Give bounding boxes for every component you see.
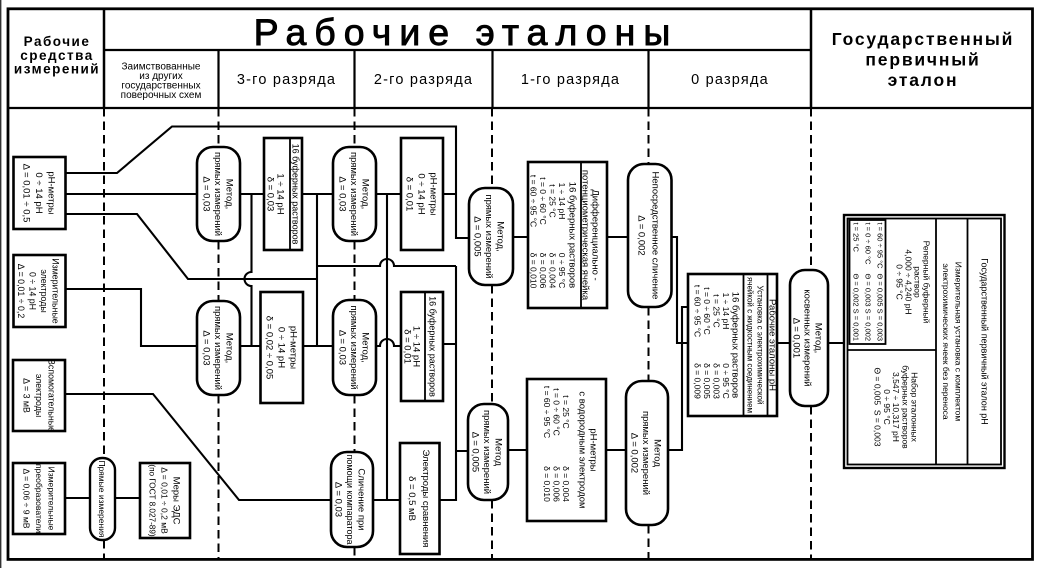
svg-text:δ = 0,006: δ = 0,006 bbox=[538, 253, 548, 289]
svg-text:помощи компаратора: помощи компаратора bbox=[345, 455, 355, 545]
svg-text:3-го разряда: 3-го разряда bbox=[237, 72, 336, 88]
svg-text:Δ = 0,005: Δ = 0,005 bbox=[470, 432, 481, 472]
svg-text:δ = 0,010: δ = 0,010 bbox=[529, 253, 539, 289]
svg-text:Установка с электрохимической: Установка с электрохимической bbox=[756, 286, 765, 405]
svg-text:первичный: первичный bbox=[865, 50, 980, 70]
svg-text:Рабочие: Рабочие bbox=[24, 34, 91, 49]
svg-text:0 ÷ 95 °C: 0 ÷ 95 °C bbox=[557, 253, 567, 288]
svg-text:Метод: Метод bbox=[493, 438, 504, 466]
svg-text:t = 0 ÷ 60 °C: t = 0 ÷ 60 °C bbox=[538, 177, 548, 225]
svg-text:0 ÷ 95 °C: 0 ÷ 95 °C bbox=[895, 264, 905, 299]
svg-text:Δ = 0,06 ÷ 9 мВ: Δ = 0,06 ÷ 9 мВ bbox=[22, 468, 32, 528]
svg-text:электрохимических ячеек без пе: электрохимических ячеек без переноса bbox=[941, 263, 951, 420]
svg-text:потенциометрическая ячейка: потенциометрическая ячейка bbox=[580, 170, 591, 301]
svg-text:ячейкой с жидкостным соединени: ячейкой с жидкостным соединением bbox=[746, 277, 755, 413]
svg-text:δ = 0,5 мВ: δ = 0,5 мВ bbox=[406, 476, 417, 521]
svg-text:δ = 0,005: δ = 0,005 bbox=[702, 363, 712, 399]
svg-text:(по ГОСТ 8.027-89): (по ГОСТ 8.027-89) bbox=[148, 464, 157, 537]
svg-text:δ = 0,01: δ = 0,01 bbox=[404, 177, 415, 212]
svg-text:δ = 0,004: δ = 0,004 bbox=[561, 466, 571, 502]
svg-text:δ = 0,006: δ = 0,006 bbox=[552, 466, 562, 502]
svg-text:прямых измерений: прямых измерений bbox=[640, 411, 651, 495]
svg-text:t = 60 ÷ 95 °C: t = 60 ÷ 95 °C bbox=[542, 386, 552, 438]
svg-text:Измерительная установка с комп: Измерительная установка с комплектом bbox=[954, 262, 964, 422]
svg-text:t = 60 ÷ 95 °C: t = 60 ÷ 95 °C bbox=[529, 175, 539, 227]
svg-text:pH-метры: pH-метры bbox=[288, 326, 299, 369]
svg-text:Δ = 0,01 ÷ 0,2 мВ: Δ = 0,01 ÷ 0,2 мВ bbox=[160, 467, 170, 534]
svg-text:Δ = 0,03: Δ = 0,03 bbox=[337, 330, 348, 365]
svg-text:прямых измерений: прямых измерений bbox=[483, 194, 494, 278]
svg-text:0 ÷ 14 pH: 0 ÷ 14 pH bbox=[28, 272, 38, 310]
svg-text:16 буферных растворов: 16 буферных растворов bbox=[291, 144, 301, 245]
svg-text:0 разряда: 0 разряда bbox=[691, 72, 769, 88]
svg-text:δ = 0,009: δ = 0,009 bbox=[693, 363, 703, 399]
svg-text:Меры ЭДС: Меры ЭДС bbox=[171, 477, 182, 525]
svg-text:Метод,: Метод, bbox=[813, 323, 824, 354]
svg-text:Государственный первичный этал: Государственный первичный эталон pH bbox=[980, 258, 990, 425]
svg-text:Δ = 0,03: Δ = 0,03 bbox=[337, 176, 348, 211]
svg-text:16 буферных растворов: 16 буферных растворов bbox=[428, 296, 438, 397]
svg-text:прямых измерений: прямых измерений bbox=[212, 152, 223, 236]
svg-text:прямых измерений: прямых измерений bbox=[212, 306, 223, 390]
svg-text:Θ = 0,005 S = 0,003: Θ = 0,005 S = 0,003 bbox=[876, 273, 885, 341]
svg-text:t = 25 °C: t = 25 °C bbox=[561, 395, 571, 428]
svg-text:δ = 0,003: δ = 0,003 bbox=[712, 363, 722, 399]
svg-text:Метод: Метод bbox=[652, 439, 663, 467]
svg-text:δ = 0,03: δ = 0,03 bbox=[265, 177, 276, 212]
svg-text:Метод,: Метод, bbox=[495, 221, 506, 252]
svg-text:прямых измерений: прямых измерений bbox=[481, 410, 492, 494]
svg-text:Θ = 0,003 S = 0,002: Θ = 0,003 S = 0,002 bbox=[864, 273, 873, 341]
svg-text:Непосредственное сличение: Непосредственное сличение bbox=[650, 172, 661, 300]
svg-text:t = 60 ÷ 95 °C: t = 60 ÷ 95 °C bbox=[693, 285, 703, 337]
svg-text:1-го разряда: 1-го разряда bbox=[521, 72, 620, 88]
svg-text:1 ÷ 14 pH: 1 ÷ 14 pH bbox=[557, 183, 567, 220]
svg-text:pH-метры: pH-метры bbox=[428, 172, 439, 215]
svg-text:0 ÷ 14 pH: 0 ÷ 14 pH bbox=[276, 327, 287, 368]
svg-text:Электроды сравнения: Электроды сравнения bbox=[420, 450, 431, 548]
svg-text:Δ = 0,03: Δ = 0,03 bbox=[201, 330, 212, 365]
svg-text:t = 0 ÷ 60 °C: t = 0 ÷ 60 °C bbox=[552, 388, 562, 436]
svg-text:Метод,: Метод, bbox=[360, 179, 371, 210]
svg-text:1 ÷ 14 pH: 1 ÷ 14 pH bbox=[721, 293, 731, 330]
svg-text:t = 0 ÷ 60 °C: t = 0 ÷ 60 °C bbox=[864, 223, 873, 266]
svg-text:Прямые измерения: Прямые измерения bbox=[97, 460, 107, 537]
svg-text:электроды: электроды bbox=[34, 374, 44, 417]
svg-text:pH-метры: pH-метры bbox=[46, 171, 57, 214]
svg-text:t = 60 ÷ 95 °C: t = 60 ÷ 95 °C bbox=[876, 223, 885, 270]
svg-text:эталон: эталон bbox=[888, 70, 959, 90]
svg-text:Δ = 3 мВ: Δ = 3 мВ bbox=[22, 378, 32, 413]
svg-text:Δ = 0,002: Δ = 0,002 bbox=[629, 433, 640, 473]
svg-text:Δ = 0,001: Δ = 0,001 bbox=[791, 318, 802, 358]
svg-text:поверочных схем: поверочных схем bbox=[121, 90, 202, 101]
svg-text:δ = 0,010: δ = 0,010 bbox=[542, 466, 552, 502]
svg-text:электроды: электроды bbox=[39, 269, 49, 312]
svg-text:0 ÷ 14 pH: 0 ÷ 14 pH bbox=[33, 172, 44, 213]
svg-text:0 ÷ 95 °C: 0 ÷ 95 °C bbox=[721, 363, 731, 398]
svg-text:Δ = 0,01 ÷ 0,2: Δ = 0,01 ÷ 0,2 bbox=[16, 264, 26, 319]
svg-text:t = 25 °C: t = 25 °C bbox=[852, 223, 861, 253]
svg-text:прямых измерений: прямых измерений bbox=[348, 152, 359, 236]
svg-text:t = 0 ÷ 60 °C: t = 0 ÷ 60 °C bbox=[702, 287, 712, 335]
svg-text:Рабочие эталоны: Рабочие эталоны bbox=[254, 11, 679, 53]
svg-text:Государственный: Государственный bbox=[832, 29, 1014, 49]
svg-text:t = 25 °C: t = 25 °C bbox=[712, 294, 722, 327]
svg-text:δ = 0,004: δ = 0,004 bbox=[548, 253, 558, 289]
svg-text:t = 25 °C: t = 25 °C bbox=[548, 184, 558, 217]
svg-text:2-го разряда: 2-го разряда bbox=[374, 72, 473, 88]
svg-text:0 ÷ 14 pH: 0 ÷ 14 pH bbox=[416, 173, 427, 214]
svg-text:Δ = 0,005: Δ = 0,005 bbox=[472, 216, 483, 256]
svg-text:Метод,: Метод, bbox=[224, 179, 235, 210]
svg-text:с водородным электродом: с водородным электродом bbox=[577, 391, 588, 508]
svg-text:Θ = 0,002 S = 0,001: Θ = 0,002 S = 0,001 bbox=[852, 273, 861, 341]
svg-text:Метод,: Метод, bbox=[224, 333, 235, 364]
svg-text:измерений: измерений bbox=[14, 62, 100, 77]
svg-text:Метод,: Метод, bbox=[360, 332, 371, 363]
svg-text:Δ = 0,002: Δ = 0,002 bbox=[636, 215, 647, 255]
svg-text:прямых измерений: прямых измерений bbox=[348, 305, 359, 389]
svg-text:преобразователи: преобразователи bbox=[34, 464, 44, 533]
svg-text:Δ = 0,03: Δ = 0,03 bbox=[333, 482, 344, 517]
svg-text:Сличение при: Сличение при bbox=[356, 468, 367, 530]
svg-text:pH-метры: pH-метры bbox=[588, 428, 599, 471]
svg-text:Δ = 0,03: Δ = 0,03 bbox=[201, 176, 212, 211]
svg-text:Θ = 0,005 S = 0,003: Θ = 0,005 S = 0,003 bbox=[873, 368, 883, 447]
svg-text:16 буферных растворов: 16 буферных растворов bbox=[567, 182, 578, 288]
svg-text:Рабочие эталоны pH: Рабочие эталоны pH bbox=[767, 299, 778, 391]
svg-text:δ = 0,02 ÷ 0,05: δ = 0,02 ÷ 0,05 bbox=[264, 316, 275, 380]
svg-text:Измерительные: Измерительные bbox=[47, 467, 57, 531]
svg-text:δ = 0,01: δ = 0,01 bbox=[402, 329, 413, 364]
svg-text:Δ = 0,01 ÷ 0,5: Δ = 0,01 ÷ 0,5 bbox=[21, 164, 32, 223]
svg-text:Вспомогательные: Вспомогательные bbox=[47, 359, 57, 432]
svg-text:Измерительные: Измерительные bbox=[51, 258, 61, 324]
svg-text:косвенных измерений: косвенных измерений bbox=[802, 289, 813, 386]
